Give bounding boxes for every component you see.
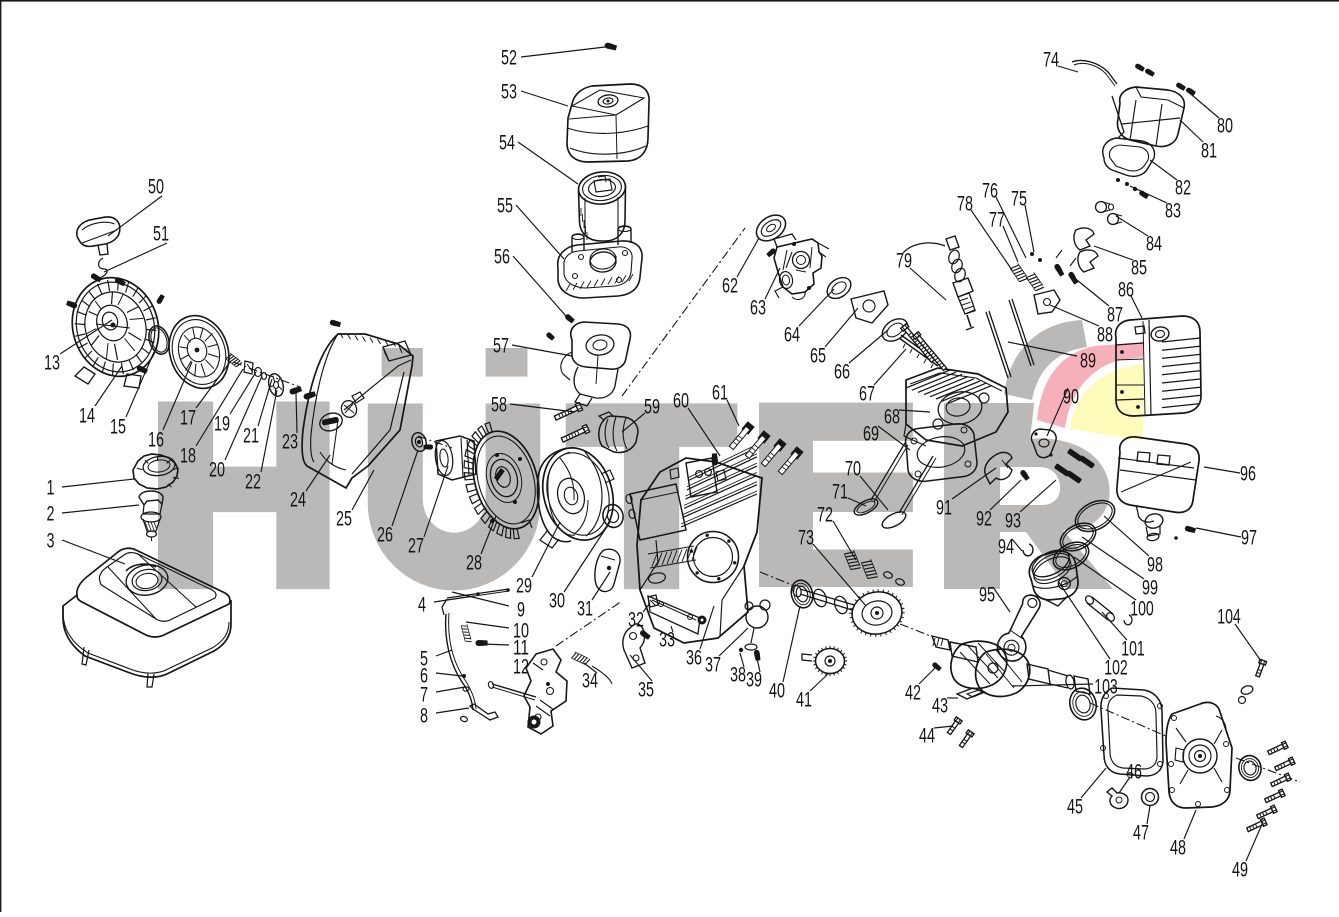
svg-text:30: 30 [549,590,565,613]
svg-text:40: 40 [769,680,785,703]
svg-text:52: 52 [501,47,517,70]
svg-text:68: 68 [884,406,900,429]
svg-text:79: 79 [896,250,912,273]
svg-text:58: 58 [491,394,507,417]
svg-text:41: 41 [796,689,812,712]
svg-text:62: 62 [722,275,738,298]
svg-text:92: 92 [976,508,992,531]
svg-text:72: 72 [817,504,833,527]
svg-text:64: 64 [784,324,800,347]
svg-text:97: 97 [1241,527,1257,550]
svg-text:71: 71 [832,481,848,504]
svg-text:49: 49 [1232,859,1248,882]
svg-text:59: 59 [644,396,660,419]
svg-text:43: 43 [932,695,948,718]
svg-text:17: 17 [180,407,196,430]
svg-text:45: 45 [1067,796,1083,819]
svg-text:60: 60 [673,390,689,413]
svg-text:28: 28 [466,552,482,575]
svg-text:84: 84 [1146,233,1162,256]
svg-text:95: 95 [979,584,995,607]
svg-text:23: 23 [282,431,298,454]
svg-text:47: 47 [1133,822,1149,845]
svg-text:44: 44 [919,725,935,748]
svg-text:80: 80 [1217,115,1233,138]
svg-text:83: 83 [1165,200,1181,223]
svg-text:57: 57 [493,335,509,358]
svg-text:91: 91 [936,497,952,520]
svg-text:103: 103 [1094,676,1118,699]
svg-text:22: 22 [245,471,261,494]
svg-text:74: 74 [1043,49,1059,72]
svg-text:81: 81 [1201,140,1217,163]
svg-text:31: 31 [577,598,593,621]
svg-text:3: 3 [47,530,55,553]
svg-text:13: 13 [44,352,60,375]
svg-text:73: 73 [798,527,814,550]
svg-text:85: 85 [1131,257,1147,280]
svg-text:96: 96 [1240,463,1256,486]
svg-text:2: 2 [47,503,55,526]
svg-text:88: 88 [1097,324,1113,347]
svg-text:21: 21 [243,425,259,448]
svg-text:35: 35 [638,679,654,702]
svg-text:104: 104 [1217,606,1241,629]
svg-text:94: 94 [998,536,1014,559]
svg-text:51: 51 [153,223,169,246]
svg-text:69: 69 [863,423,879,446]
svg-text:34: 34 [582,670,598,693]
svg-text:77: 77 [989,209,1005,232]
svg-text:32: 32 [628,609,644,632]
svg-text:63: 63 [750,297,766,320]
svg-text:66: 66 [834,361,850,384]
svg-text:100: 100 [1130,598,1154,621]
svg-text:12: 12 [513,656,529,679]
svg-text:99: 99 [1142,577,1158,600]
svg-text:36: 36 [686,647,702,670]
svg-text:50: 50 [148,176,164,199]
svg-text:55: 55 [497,195,513,218]
svg-text:18: 18 [180,445,196,468]
svg-text:56: 56 [494,246,510,269]
svg-text:27: 27 [408,535,424,558]
svg-text:7: 7 [420,684,428,707]
svg-text:98: 98 [1147,554,1163,577]
svg-text:75: 75 [1011,188,1027,211]
svg-text:15: 15 [110,416,126,439]
svg-text:42: 42 [905,682,921,705]
svg-text:61: 61 [712,382,728,405]
svg-text:14: 14 [79,405,95,428]
svg-text:93: 93 [1005,510,1021,533]
svg-text:29: 29 [516,575,532,598]
svg-text:4: 4 [418,594,426,617]
svg-text:24: 24 [290,489,306,512]
svg-text:25: 25 [336,508,352,531]
svg-text:48: 48 [1170,837,1186,860]
svg-text:26: 26 [377,524,393,547]
svg-text:1: 1 [47,477,55,500]
svg-text:67: 67 [859,383,875,406]
svg-text:76: 76 [982,180,998,203]
svg-text:16: 16 [148,429,164,452]
svg-text:78: 78 [957,193,973,216]
svg-text:90: 90 [1063,386,1079,409]
svg-text:53: 53 [501,81,517,104]
svg-text:9: 9 [517,599,525,622]
svg-text:20: 20 [209,459,225,482]
svg-text:54: 54 [499,132,515,155]
svg-text:65: 65 [810,345,826,368]
svg-text:37: 37 [705,654,721,677]
svg-text:19: 19 [214,413,230,436]
svg-text:82: 82 [1175,177,1191,200]
svg-text:8: 8 [420,705,428,728]
svg-text:70: 70 [845,458,861,481]
svg-text:89: 89 [1080,350,1096,373]
